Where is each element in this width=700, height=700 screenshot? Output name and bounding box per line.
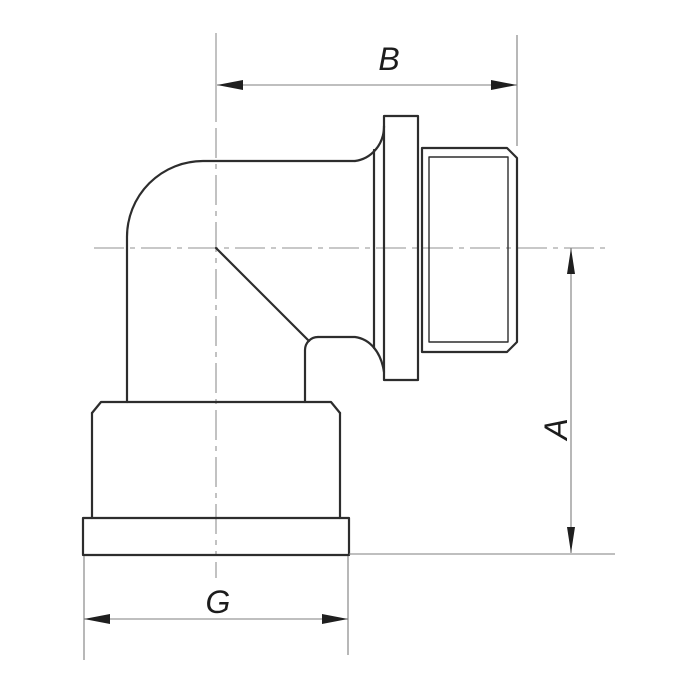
a-top-arrowhead	[567, 248, 575, 274]
elbow-inner-fillet-and-right-edge	[305, 337, 318, 402]
dimension-a-label: A	[538, 418, 574, 441]
a-bottom-arrowhead	[567, 527, 575, 553]
thread-inner-profile	[429, 157, 508, 342]
dimension-a: A	[349, 248, 615, 554]
technical-drawing-canvas: B A G	[0, 0, 700, 700]
g-right-arrowhead	[322, 614, 348, 624]
centerlines	[94, 33, 605, 578]
elbow-body	[127, 126, 384, 402]
thread-outer-profile	[422, 148, 517, 352]
dimension-b-label: B	[378, 41, 399, 77]
dimension-b: B	[217, 35, 517, 146]
b-right-arrowhead	[491, 80, 517, 90]
dimension-g-label: G	[206, 584, 231, 620]
elbow-inner-diagonal	[216, 248, 309, 341]
elbow-outer-silhouette	[127, 161, 355, 402]
g-left-arrowhead	[84, 614, 110, 624]
b-left-arrowhead	[217, 80, 243, 90]
arm-top-fillet	[355, 126, 384, 161]
elbow-fitting-drawing: B A G	[0, 0, 700, 700]
